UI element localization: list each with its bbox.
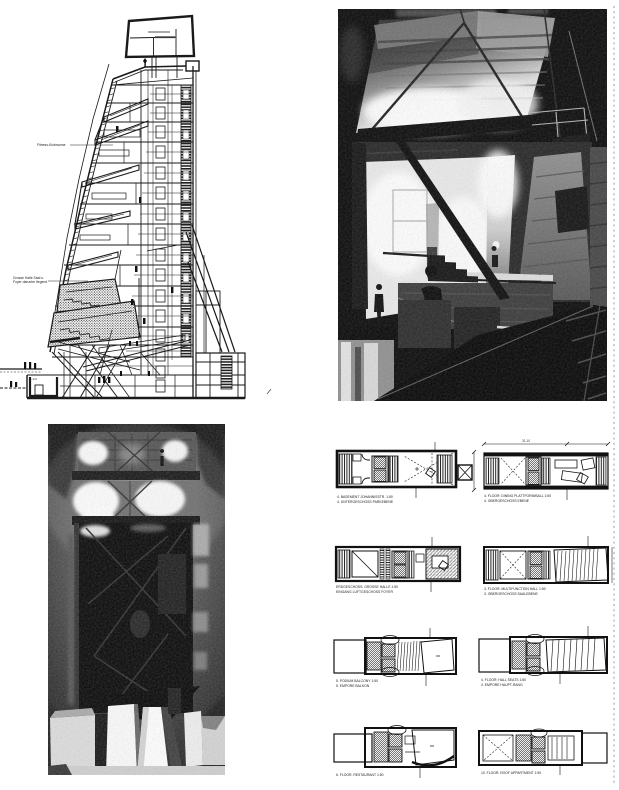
svg-text:4. FLOOR: HALL SEATS 1:50: 4. FLOOR: HALL SEATS 1:50 xyxy=(481,678,526,682)
svg-text:4. UNTERGESCHOSS PARKEBENE: 4. UNTERGESCHOSS PARKEBENE xyxy=(337,500,394,504)
svg-text:EINGANG LUFTGESCHOSS FOYER: EINGANG LUFTGESCHOSS FOYER xyxy=(336,590,393,594)
svg-text:4. BASEMENT JOHANNISSTR. 1:50: 4. BASEMENT JOHANNISSTR. 1:50 xyxy=(337,495,393,499)
svg-text:3. FLOOR: MULTIFUNCTION HALL 1: 3. FLOOR: MULTIFUNCTION HALL 1:50 xyxy=(484,587,546,591)
svg-text:Fitness-Klubraume: Fitness-Klubraume xyxy=(37,143,66,147)
svg-text:ERDGESCHOSS: GROSSE HALLE 1:50: ERDGESCHOSS: GROSSE HALLE 1:50 xyxy=(336,585,398,589)
svg-text:Foyer darunter liegend: Foyer darunter liegend xyxy=(13,280,47,284)
svg-text:5. PODIUM BALCONY 1:50: 5. PODIUM BALCONY 1:50 xyxy=(336,679,378,683)
svg-text:31.10: 31.10 xyxy=(522,439,530,443)
svg-text:4. FLOOR: DINING PLATTFORM/BAL: 4. FLOOR: DINING PLATTFORM/BALL 1:50 xyxy=(484,494,551,498)
svg-text:10. FLOOR: ROOF APPARTMENT 1:5: 10. FLOOR: ROOF APPARTMENT 1:50 xyxy=(481,771,541,775)
svg-text:4. OBERGESCHOSS EBENE: 4. OBERGESCHOSS EBENE xyxy=(484,499,530,503)
svg-text:4. EMPORE HAUPT-RANG: 4. EMPORE HAUPT-RANG xyxy=(481,683,523,687)
svg-text:3. OBERGESCHOSS SAALEBENE: 3. OBERGESCHOSS SAALEBENE xyxy=(484,592,538,596)
svg-text:6. FLOOR: RESTAURANT 1:50: 6. FLOOR: RESTAURANT 1:50 xyxy=(336,773,384,777)
svg-text:5. EMPORE BALKON: 5. EMPORE BALKON xyxy=(336,684,370,688)
svg-text:+-0.0: +-0.0 xyxy=(30,377,37,381)
